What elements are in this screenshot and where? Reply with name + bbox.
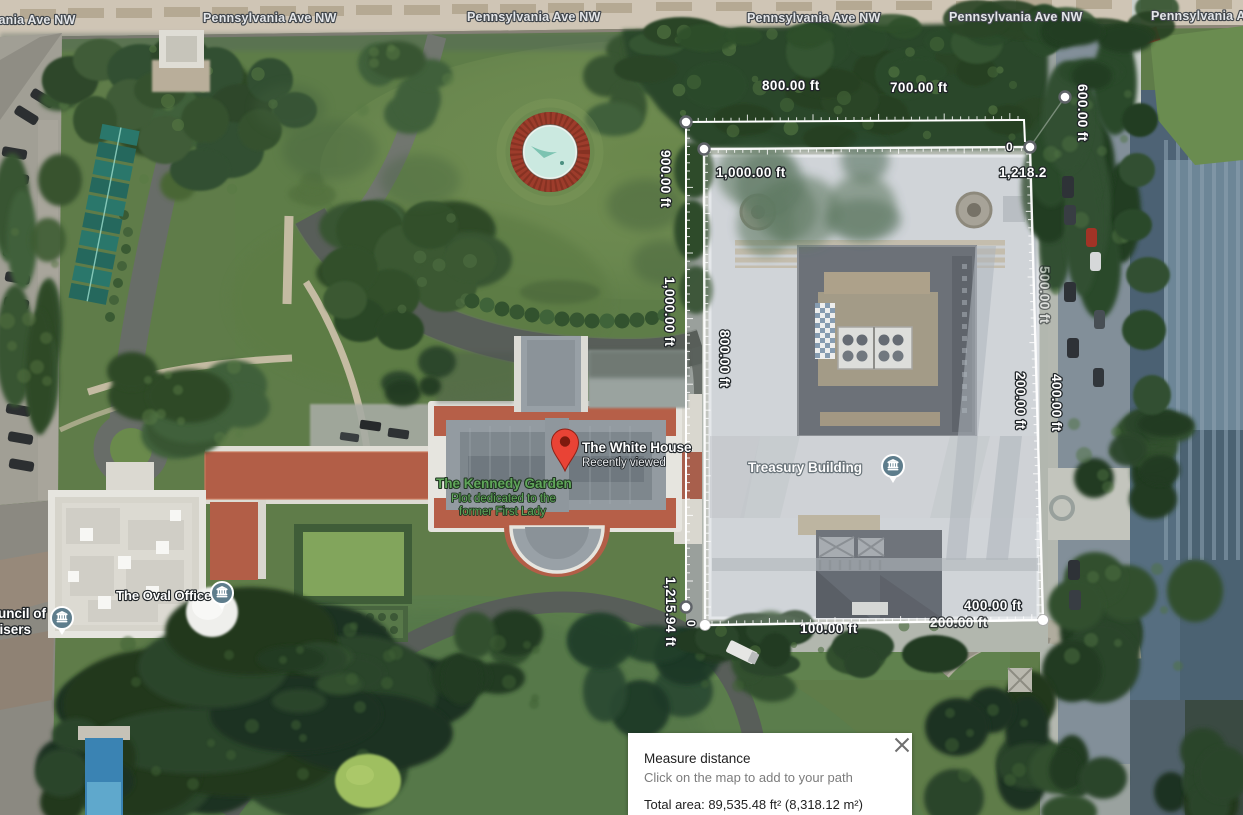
svg-text:Plot dedicated to the: Plot dedicated to the [451,493,556,505]
svg-text:600.00 ft: 600.00 ft [1075,84,1090,142]
svg-text:1,000.00 ft: 1,000.00 ft [716,165,786,180]
svg-text:Pennsylvania Ave NW: Pennsylvania Ave NW [203,11,336,25]
svg-text:900.00 ft: 900.00 ft [658,150,673,208]
svg-text:The White House: The White House [582,440,692,455]
svg-text:Council of: Council of [0,606,46,621]
svg-text:Pennsylvania Ave NW: Pennsylvania Ave NW [0,13,75,27]
svg-text:1,218.2: 1,218.2 [999,165,1047,180]
svg-text:0: 0 [1006,140,1013,154]
svg-text:Treasury Building: Treasury Building [748,460,862,475]
svg-text:200.00 ft: 200.00 ft [1013,372,1028,430]
svg-text:500.00 ft: 500.00 ft [1037,266,1052,324]
svg-text:400.00 ft: 400.00 ft [1049,374,1064,432]
svg-text:Pennsylvania Ave NW: Pennsylvania Ave NW [949,10,1082,24]
svg-text:The Oval Office: The Oval Office [116,588,211,603]
svg-text:400.00 ft: 400.00 ft [964,598,1022,613]
svg-text:800.00 ft: 800.00 ft [762,78,820,93]
svg-text:Click on the map to add to you: Click on the map to add to your path [644,770,853,785]
svg-text:1,000.00 ft: 1,000.00 ft [662,277,677,347]
svg-text:0: 0 [684,620,698,627]
svg-text:700.00 ft: 700.00 ft [890,80,948,95]
svg-text:The Kennedy Garden: The Kennedy Garden [436,476,572,491]
svg-text:Recently viewed: Recently viewed [582,457,666,469]
svg-text:1,215.94 ft: 1,215.94 ft [663,577,678,647]
svg-text:Total area: 89,535.48 ft² (8,3: Total area: 89,535.48 ft² (8,318.12 m²) [644,797,863,812]
svg-text:Pennsylvania Ave NW: Pennsylvania Ave NW [747,11,880,25]
svg-text:800.00 ft: 800.00 ft [717,330,732,388]
svg-text:Pennsylvania Av: Pennsylvania Av [1151,9,1243,23]
svg-text:Pennsylvania Ave NW: Pennsylvania Ave NW [467,10,600,24]
svg-text:former First Lady: former First Lady [459,506,546,518]
svg-text:Measure distance: Measure distance [644,751,751,766]
svg-text:Advisers: Advisers [0,622,31,637]
